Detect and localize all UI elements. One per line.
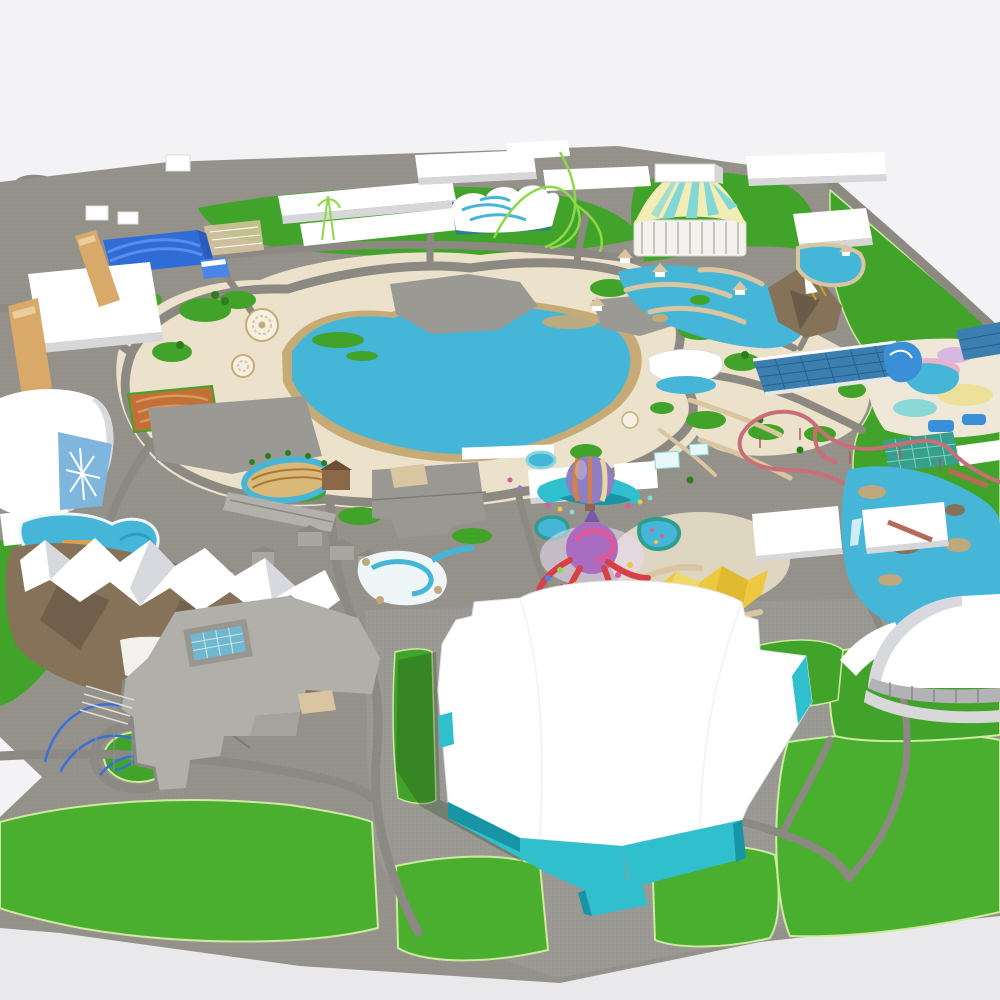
lawn-southeast — [776, 733, 1000, 937]
theme-park-render — [0, 0, 1000, 1000]
park-3d-render — [0, 0, 1000, 1000]
lawn-south-center — [396, 857, 548, 961]
lawn-southwest — [0, 800, 378, 941]
tent-marquee — [655, 164, 715, 182]
parking-rows — [204, 220, 264, 256]
lake-island — [312, 332, 364, 348]
